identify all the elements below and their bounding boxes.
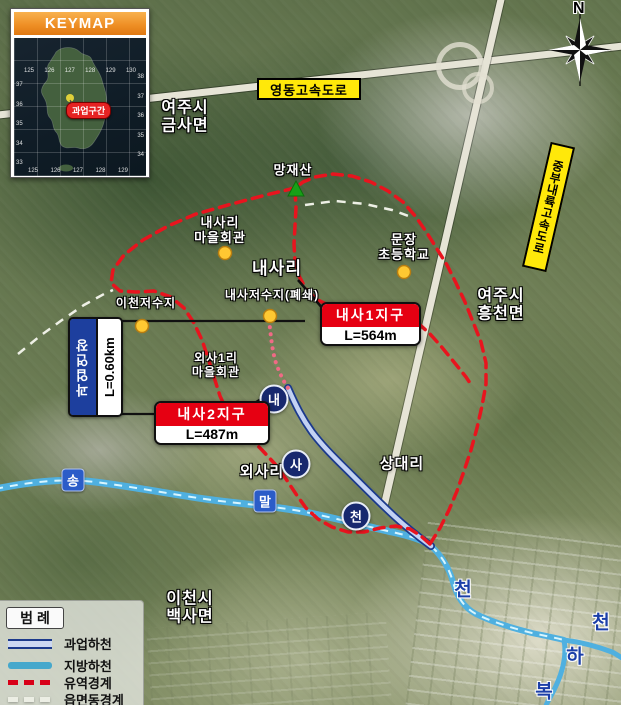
place-label-yeoju-geumsa: 여주시금사면 bbox=[161, 100, 208, 137]
district1-name: 내사1지구 bbox=[322, 304, 419, 327]
poi-marker-naesari-hall bbox=[219, 247, 232, 260]
river-char-song: 송 bbox=[62, 469, 85, 492]
river-char-bok: 복 bbox=[535, 677, 552, 704]
project-extent-length: L=0.60km bbox=[96, 319, 121, 415]
compass-north-label: N bbox=[573, 0, 585, 18]
project-extent-label: 과업연장 bbox=[70, 319, 96, 415]
river-char-mal: 말 bbox=[254, 490, 277, 513]
project-stream-symbol bbox=[8, 639, 52, 649]
district2-name: 내사2지구 bbox=[156, 403, 268, 426]
keymap-lat-left: 3736353433 bbox=[16, 82, 23, 166]
place-label-naesari-hall: 내사리마을회관 bbox=[194, 216, 246, 246]
river-char-ha: 하 bbox=[566, 642, 583, 669]
poi-marker-icheon-reservoir bbox=[136, 320, 149, 333]
legend-title: 범 례 bbox=[6, 607, 64, 629]
river-char-cheon: 천 bbox=[342, 502, 371, 531]
place-label-sangdaeri: 상대리 bbox=[380, 455, 424, 472]
place-label-oesari: 외사리 bbox=[240, 463, 284, 480]
yeongdong-expressway-label: 영동고속도로 bbox=[257, 78, 361, 100]
compass-rose-icon bbox=[548, 14, 612, 86]
keymap-lat-right: 3837363534 bbox=[137, 74, 144, 158]
place-label-munjang-school: 문장초등학교 bbox=[378, 233, 430, 263]
keymap-lon-bottom: 125126127128129 bbox=[28, 168, 128, 174]
map-canvas: N 영동고속도로 중부내륙고속도로 여주시금사면 망재산 내사리마을회관 내사리… bbox=[0, 0, 621, 705]
poi-marker-naesa-reservoir bbox=[264, 310, 277, 323]
keymap-project-marker-label: 과업구간 bbox=[66, 102, 111, 119]
place-label-oesa1ri-hall: 외사1리마을회관 bbox=[192, 352, 240, 380]
district2-callout: 내사2지구 L=487m bbox=[154, 401, 270, 445]
district-boundary-symbol bbox=[8, 697, 52, 702]
legend-item-project-stream: 과업하천 bbox=[8, 634, 112, 653]
watershed-boundary-symbol bbox=[8, 680, 52, 685]
place-label-naesari: 내사리 bbox=[252, 259, 302, 279]
project-extent-callout: 과업연장 L=0.60km bbox=[68, 317, 123, 417]
keymap-inset: KEYMAP 과업구간 125126127128129130 125126127… bbox=[10, 8, 150, 178]
keymap-map: 과업구간 125126127128129130 125126127128129 … bbox=[14, 38, 146, 176]
project-stream-dotted-section bbox=[269, 320, 288, 388]
district1-callout: 내사1지구 L=564m bbox=[320, 302, 421, 346]
place-label-mangjaesan: 망재산 bbox=[274, 164, 313, 179]
river-char-cheon-3: 천 bbox=[592, 608, 609, 635]
legend-item-district-boundary: 읍면동경계 bbox=[8, 690, 124, 705]
local-stream-symbol bbox=[8, 662, 52, 669]
place-label-naesa-reservoir: 내사저수지(폐쇄) bbox=[225, 289, 319, 303]
district1-length: L=564m bbox=[322, 327, 419, 344]
watershed-boundary-line bbox=[111, 174, 486, 544]
place-label-yeoju-heungcheon: 여주시흥천면 bbox=[477, 288, 524, 325]
river-char-sa: 사 bbox=[282, 450, 311, 479]
keymap-title: KEYMAP bbox=[14, 12, 146, 35]
district2-length: L=487m bbox=[156, 426, 268, 443]
poi-marker-munjang-school bbox=[398, 266, 411, 279]
place-label-icheon-baeksa: 이천시백사면 bbox=[166, 591, 213, 628]
legend-panel: 범 례 과업하천 지방하천 유역경계 읍면동경계 bbox=[0, 600, 144, 705]
place-label-icheon-reservoir: 이천저수지 bbox=[116, 297, 176, 311]
river-char-cheon-2: 천 bbox=[454, 575, 471, 602]
keymap-lon-top: 125126127128129130 bbox=[24, 68, 136, 74]
